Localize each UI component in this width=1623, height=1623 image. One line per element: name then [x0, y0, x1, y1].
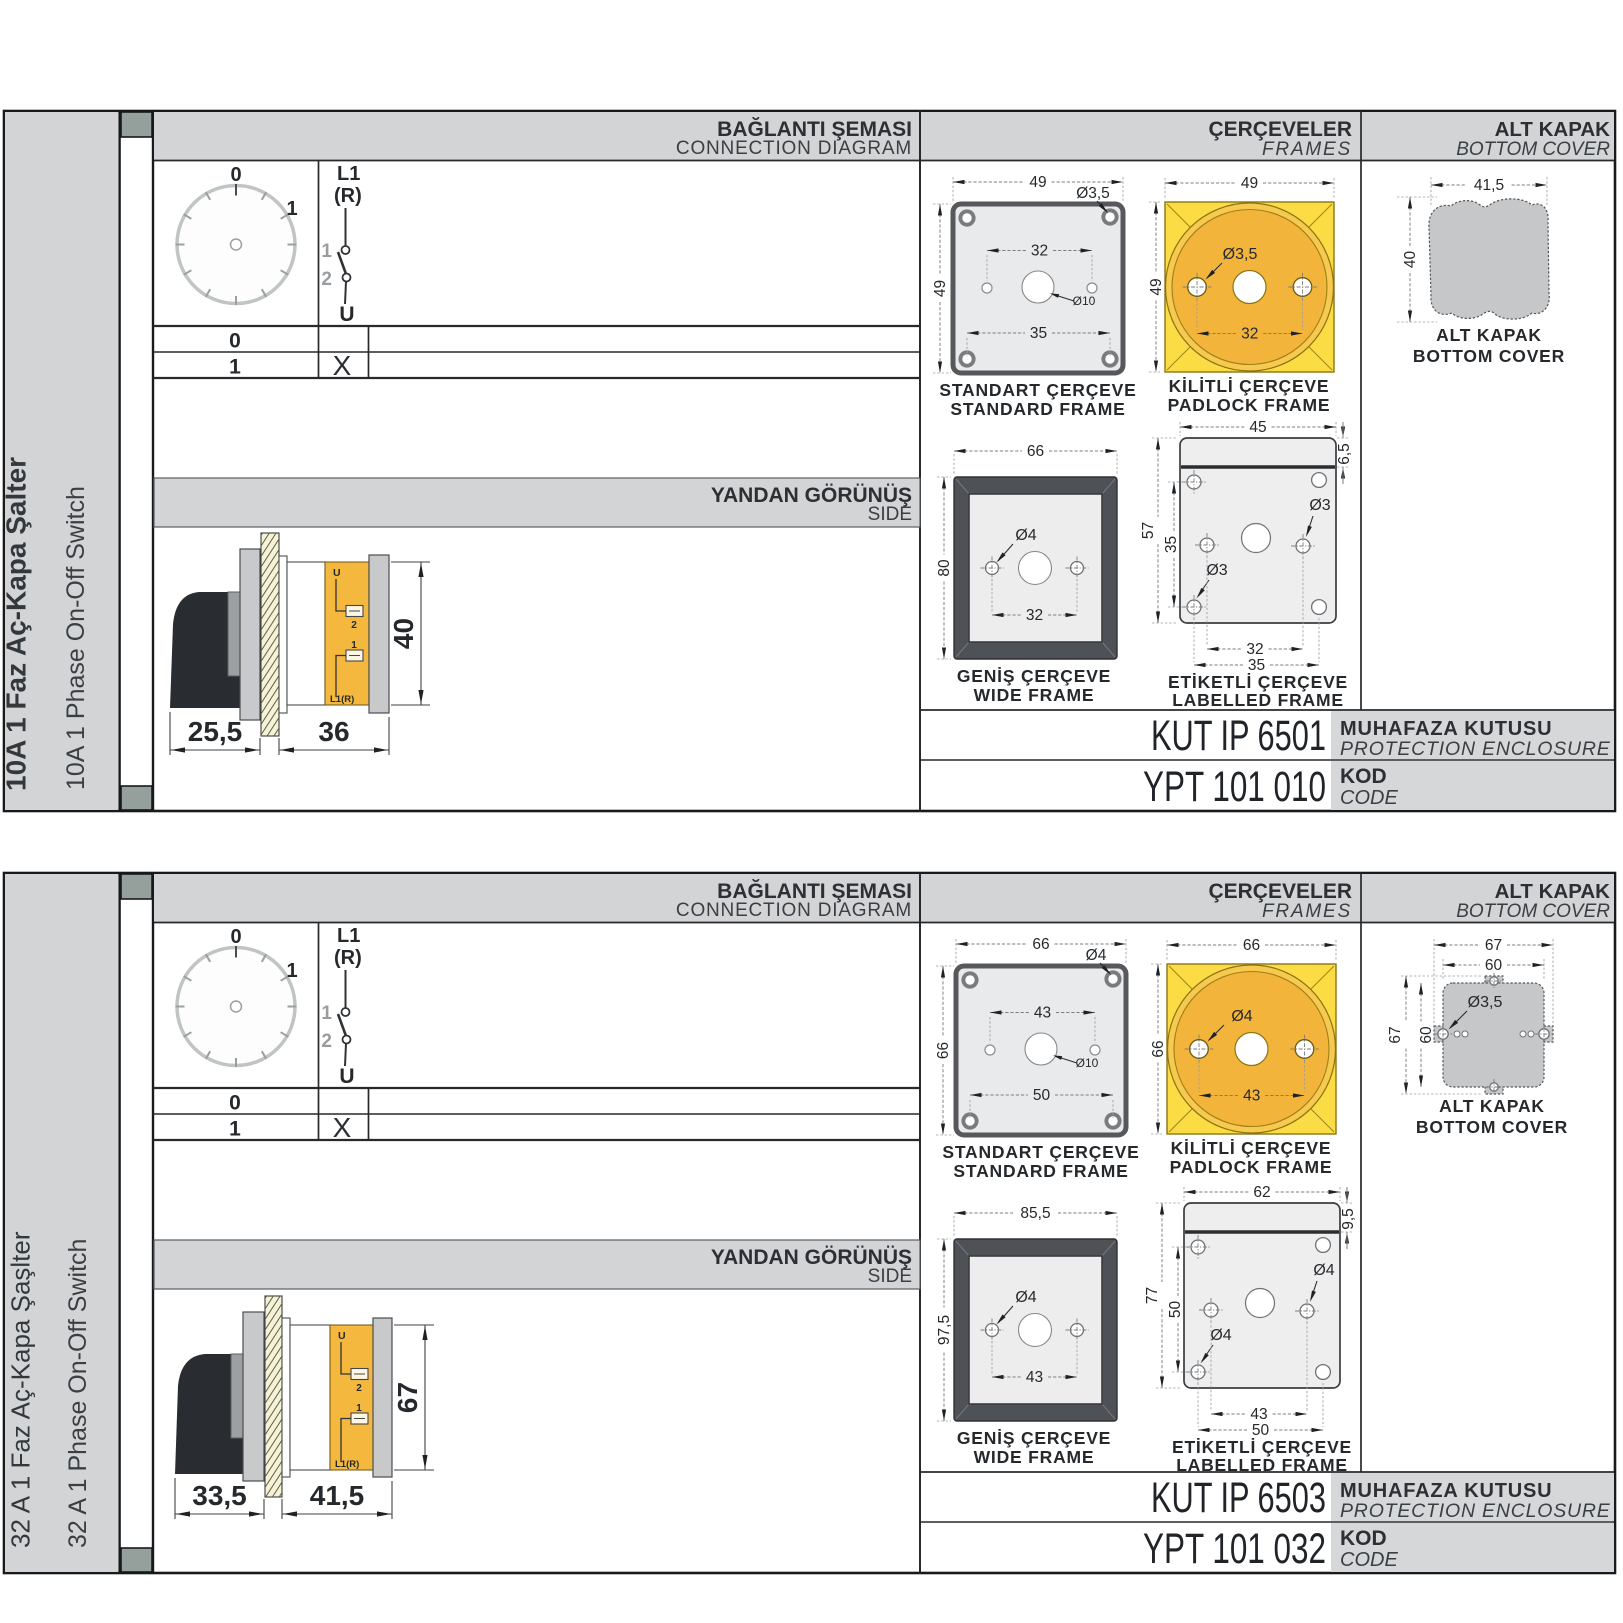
- svg-text:Ø3,5: Ø3,5: [1223, 246, 1258, 263]
- svg-text:49: 49: [1241, 175, 1258, 192]
- svg-text:41,5: 41,5: [1474, 177, 1504, 194]
- svg-text:KOD: KOD: [1340, 765, 1387, 788]
- svg-text:1: 1: [286, 198, 297, 220]
- svg-text:32 A 1 Faz Aç-Kapa Şaşlter: 32 A 1 Faz Aç-Kapa Şaşlter: [6, 1231, 36, 1548]
- svg-text:CONNECTION DIAGRAM: CONNECTION DIAGRAM: [676, 900, 912, 921]
- svg-text:Ø4: Ø4: [1231, 1008, 1252, 1025]
- svg-text:(R): (R): [334, 947, 362, 969]
- svg-text:FRAMES: FRAMES: [1262, 139, 1352, 160]
- svg-text:32: 32: [1026, 607, 1043, 624]
- svg-text:49: 49: [932, 280, 949, 297]
- svg-text:CODE: CODE: [1340, 1549, 1398, 1571]
- svg-text:Ø4: Ø4: [1313, 1262, 1334, 1279]
- svg-text:Ø10: Ø10: [1076, 1056, 1099, 1070]
- svg-text:Ø4: Ø4: [1086, 947, 1107, 964]
- svg-text:32: 32: [1241, 326, 1258, 343]
- svg-text:X: X: [333, 1112, 352, 1143]
- svg-text:CODE: CODE: [1340, 787, 1398, 809]
- svg-text:67: 67: [392, 1382, 423, 1413]
- svg-text:2: 2: [321, 1031, 332, 1052]
- svg-text:L1(R): L1(R): [330, 694, 354, 705]
- svg-text:35: 35: [1163, 536, 1180, 553]
- svg-text:67: 67: [1387, 1026, 1404, 1043]
- svg-text:SIDE: SIDE: [868, 1266, 912, 1287]
- svg-text:X: X: [333, 350, 352, 381]
- svg-text:43: 43: [1026, 1369, 1043, 1386]
- svg-text:PROTECTION ENCLOSURE: PROTECTION ENCLOSURE: [1340, 1500, 1611, 1522]
- svg-text:Ø3,5: Ø3,5: [1076, 185, 1110, 202]
- svg-text:85,5: 85,5: [1020, 1205, 1050, 1222]
- svg-text:STANDARD FRAME: STANDARD FRAME: [950, 399, 1125, 419]
- svg-text:KİLİTLİ ÇERÇEVE: KİLİTLİ ÇERÇEVE: [1169, 376, 1330, 396]
- svg-text:STANDARD FRAME: STANDARD FRAME: [953, 1161, 1128, 1181]
- svg-text:BOTTOM COVER: BOTTOM COVER: [1413, 346, 1565, 366]
- svg-text:25,5: 25,5: [188, 716, 243, 747]
- svg-text:33,5: 33,5: [192, 1480, 247, 1511]
- svg-text:50: 50: [1167, 1301, 1184, 1319]
- svg-text:57: 57: [1140, 522, 1157, 539]
- svg-text:GENİŞ ÇERÇEVE: GENİŞ ÇERÇEVE: [957, 666, 1111, 686]
- svg-text:43: 43: [1243, 1088, 1260, 1105]
- svg-text:0: 0: [229, 330, 241, 353]
- svg-text:WIDE FRAME: WIDE FRAME: [974, 1447, 1095, 1467]
- svg-text:1: 1: [286, 960, 297, 982]
- svg-text:KİLİTLİ ÇERÇEVE: KİLİTLİ ÇERÇEVE: [1171, 1138, 1332, 1158]
- svg-text:1: 1: [229, 356, 241, 379]
- svg-text:PADLOCK FRAME: PADLOCK FRAME: [1170, 1157, 1333, 1177]
- svg-text:LABELLED FRAME: LABELLED FRAME: [1172, 690, 1344, 710]
- svg-text:Ø3,5: Ø3,5: [1468, 994, 1503, 1011]
- svg-text:YPT 101 010: YPT 101 010: [1143, 763, 1326, 811]
- svg-text:KUT IP 6503: KUT IP 6503: [1151, 1474, 1326, 1522]
- svg-text:45: 45: [1249, 419, 1266, 436]
- svg-text:KOD: KOD: [1340, 1527, 1387, 1550]
- svg-text:SIDE: SIDE: [868, 504, 912, 525]
- svg-text:ALT KAPAK: ALT KAPAK: [1495, 118, 1611, 141]
- svg-text:KUT IP 6501: KUT IP 6501: [1151, 712, 1326, 760]
- svg-text:43: 43: [1250, 1406, 1267, 1423]
- svg-text:CONNECTION DIAGRAM: CONNECTION DIAGRAM: [676, 138, 912, 159]
- svg-text:43: 43: [1034, 1005, 1051, 1022]
- svg-text:2: 2: [321, 269, 332, 290]
- svg-text:66: 66: [1243, 937, 1260, 954]
- svg-text:1: 1: [321, 241, 332, 262]
- svg-text:Ø10: Ø10: [1073, 294, 1096, 308]
- svg-text:ALT KAPAK: ALT KAPAK: [1436, 325, 1542, 345]
- svg-text:80: 80: [936, 559, 953, 577]
- svg-text:97,5: 97,5: [936, 1315, 953, 1345]
- svg-text:41,5: 41,5: [310, 1480, 365, 1511]
- svg-text:32: 32: [1031, 243, 1048, 260]
- svg-text:L1: L1: [337, 925, 360, 947]
- svg-text:PADLOCK FRAME: PADLOCK FRAME: [1168, 395, 1331, 415]
- svg-text:WIDE FRAME: WIDE FRAME: [974, 685, 1095, 705]
- svg-text:Ø4: Ø4: [1210, 1327, 1231, 1344]
- svg-text:PROTECTION ENCLOSURE: PROTECTION ENCLOSURE: [1340, 738, 1611, 760]
- svg-text:ÇERÇEVELER: ÇERÇEVELER: [1208, 880, 1352, 903]
- svg-text:L1(R): L1(R): [335, 1459, 359, 1470]
- svg-text:GENİŞ ÇERÇEVE: GENİŞ ÇERÇEVE: [957, 1428, 1111, 1448]
- svg-text:ETİKETLİ ÇERÇEVE: ETİKETLİ ÇERÇEVE: [1172, 1437, 1352, 1457]
- svg-text:60: 60: [1485, 957, 1503, 974]
- svg-text:U: U: [339, 1065, 354, 1088]
- svg-text:Ø4: Ø4: [1015, 527, 1036, 544]
- svg-text:U: U: [338, 1330, 346, 1342]
- svg-text:66: 66: [1150, 1040, 1167, 1057]
- svg-text:9,5: 9,5: [1340, 1208, 1357, 1230]
- svg-text:32: 32: [1246, 641, 1263, 658]
- svg-text:50: 50: [1033, 1087, 1051, 1104]
- svg-text:0: 0: [230, 164, 241, 186]
- svg-text:ETİKETLİ ÇERÇEVE: ETİKETLİ ÇERÇEVE: [1168, 672, 1348, 692]
- svg-text:49: 49: [1029, 174, 1046, 191]
- svg-text:66: 66: [935, 1042, 952, 1059]
- svg-text:2: 2: [356, 1383, 362, 1394]
- svg-text:35: 35: [1030, 325, 1047, 342]
- svg-text:U: U: [339, 303, 354, 326]
- svg-text:6,5: 6,5: [1336, 443, 1353, 465]
- svg-text:L1: L1: [337, 163, 360, 185]
- svg-text:FRAMES: FRAMES: [1262, 901, 1352, 922]
- svg-text:(R): (R): [334, 185, 362, 207]
- svg-text:1: 1: [356, 1403, 362, 1414]
- svg-text:BOTTOM COVER: BOTTOM COVER: [1416, 1117, 1568, 1137]
- svg-text:YPT 101 032: YPT 101 032: [1143, 1525, 1326, 1573]
- svg-text:Ø4: Ø4: [1015, 1289, 1036, 1306]
- svg-text:66: 66: [1027, 443, 1044, 460]
- svg-text:0: 0: [229, 1092, 241, 1115]
- svg-text:49: 49: [1148, 278, 1165, 295]
- svg-text:Ø3: Ø3: [1309, 497, 1330, 514]
- svg-text:67: 67: [1485, 937, 1502, 954]
- svg-text:60: 60: [1418, 1026, 1435, 1044]
- svg-text:ÇERÇEVELER: ÇERÇEVELER: [1208, 118, 1352, 141]
- svg-text:40: 40: [388, 618, 419, 649]
- svg-text:0: 0: [230, 926, 241, 948]
- svg-text:62: 62: [1253, 1184, 1270, 1201]
- svg-text:1: 1: [229, 1118, 241, 1141]
- svg-text:32 A 1 Phase On-Off Switch: 32 A 1 Phase On-Off Switch: [64, 1239, 92, 1548]
- svg-text:U: U: [333, 567, 341, 579]
- svg-text:1: 1: [351, 640, 357, 651]
- svg-text:BOTTOM COVER: BOTTOM COVER: [1456, 139, 1610, 160]
- svg-text:40: 40: [1402, 251, 1419, 269]
- svg-text:Ø3: Ø3: [1206, 562, 1227, 579]
- svg-text:77: 77: [1144, 1287, 1161, 1304]
- svg-text:10A 1 Phase On-Off Switch: 10A 1 Phase On-Off Switch: [62, 486, 90, 790]
- svg-text:36: 36: [318, 716, 349, 747]
- svg-text:ALT KAPAK: ALT KAPAK: [1495, 880, 1611, 903]
- svg-text:MUHAFAZA KUTUSU: MUHAFAZA KUTUSU: [1340, 1480, 1552, 1502]
- svg-text:STANDART ÇERÇEVE: STANDART ÇERÇEVE: [942, 1142, 1139, 1162]
- svg-text:66: 66: [1032, 936, 1049, 953]
- svg-text:1: 1: [321, 1003, 332, 1024]
- svg-text:ALT KAPAK: ALT KAPAK: [1439, 1096, 1545, 1116]
- svg-text:STANDART ÇERÇEVE: STANDART ÇERÇEVE: [939, 380, 1136, 400]
- svg-text:MUHAFAZA KUTUSU: MUHAFAZA KUTUSU: [1340, 718, 1552, 740]
- svg-text:BOTTOM COVER: BOTTOM COVER: [1456, 901, 1610, 922]
- svg-text:2: 2: [351, 620, 357, 631]
- svg-text:10A 1 Faz Aç-Kapa Şalter: 10A 1 Faz Aç-Kapa Şalter: [1, 457, 32, 791]
